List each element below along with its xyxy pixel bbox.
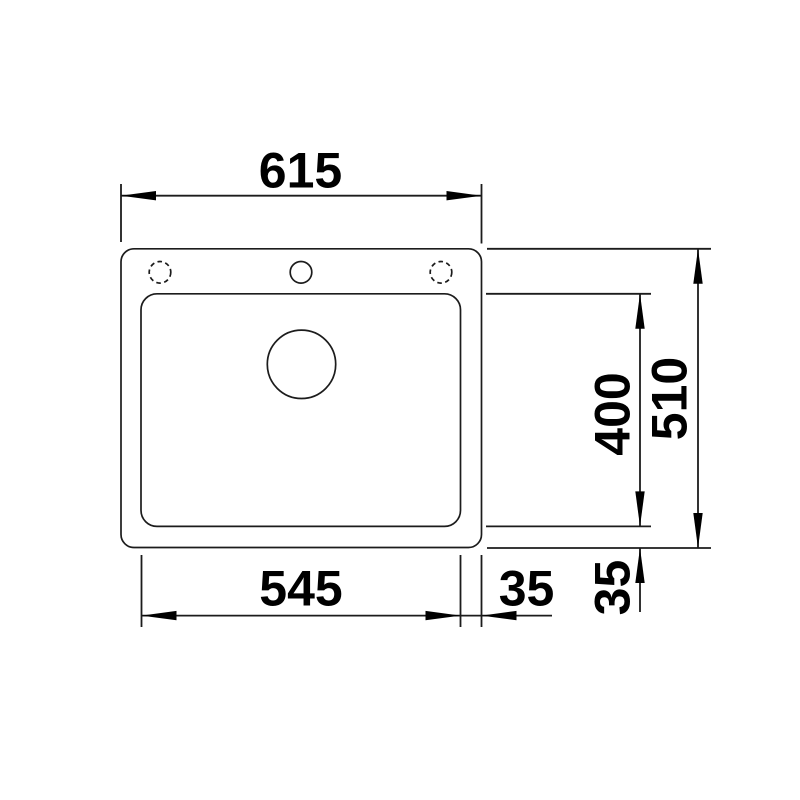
svg-text:545: 545 <box>259 561 342 617</box>
svg-text:510: 510 <box>642 357 698 440</box>
svg-text:35: 35 <box>585 560 641 616</box>
svg-text:400: 400 <box>585 372 641 455</box>
svg-text:615: 615 <box>259 143 342 199</box>
svg-text:35: 35 <box>499 561 555 617</box>
